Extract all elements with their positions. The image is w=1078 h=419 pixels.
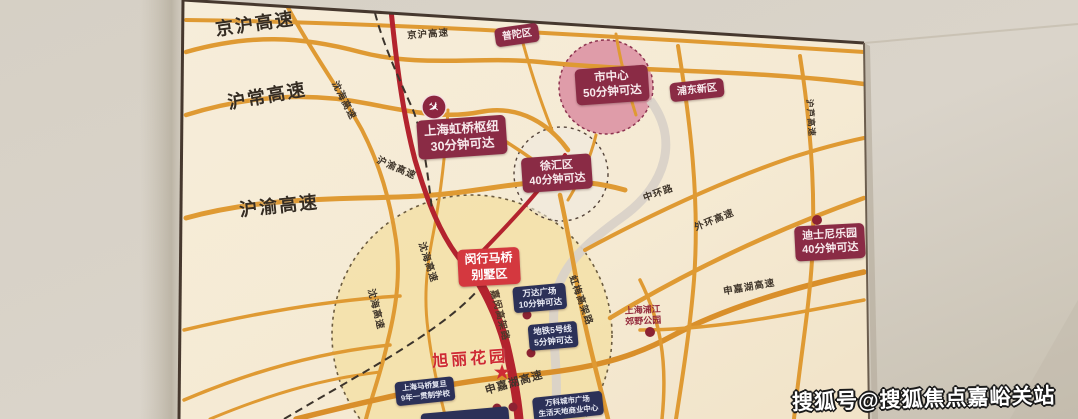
badge-xuhui: 徐汇区 40分钟可达 [521, 153, 593, 192]
road-label-jiamin-viaduct: 嘉闵高架路 [488, 288, 514, 342]
road-label-shenhai-bottom: 沈海高速 [365, 287, 389, 331]
badge-cutoff [420, 406, 509, 419]
road-label-huchang: 沪常高速 [225, 75, 308, 114]
poi-pujiang-park: 上海浦江 郊野公园 [624, 304, 661, 328]
road-label-waihuan: 外环高速 [692, 205, 736, 234]
road-label-hulu: 沪芦高速 [804, 99, 819, 138]
road-label-shenhai-top: 沈海高速 [329, 78, 361, 122]
badge-metro5: 地铁5号线 5分钟可达 [528, 321, 579, 351]
road-label-jinghu-small: 京沪高速 [407, 25, 450, 42]
badge-city-center: 市中心 50分钟可达 [574, 65, 649, 106]
badge-school: 上海马桥复旦 9年一贯制学校 [394, 376, 455, 406]
road-label-jinghu-big: 京沪高速 [214, 5, 297, 42]
map-labels: 京沪高速 沪常高速 沪渝高速 京沪高速 沈海高速 沪渝高速 沈海高速 沈海高速 … [0, 0, 1078, 419]
badge-putuo: 普陀区 [494, 23, 540, 48]
badge-vanke: 万科城市广场 生活天地商业中心 [532, 391, 604, 419]
road-label-shenhai-mid: 沈海高速 [416, 240, 442, 284]
road-label-zhonghuan: 中环路 [641, 180, 675, 204]
poi-xuli-garden: 旭丽花园 [431, 342, 509, 371]
road-label-huyu-big: 沪渝高速 [238, 188, 320, 222]
photo-of-location-map: ✈ ★ 京沪高速 沪常高速 沪渝高速 京沪高速 沈海高速 沪渝高速 沈海高速 沈… [0, 0, 1078, 419]
badge-minhang-maqiao: 闵行马桥 别墅区 [457, 247, 521, 287]
badge-hongqiao: 上海虹桥枢纽 30分钟可达 [416, 115, 507, 160]
badge-wanda: 万达广场 10分钟可达 [512, 283, 568, 314]
road-label-shenjiahu-bottom: 申嘉湖高速 [483, 366, 545, 398]
road-label-hongmei-viaduct: 虹梅高架路 [566, 273, 597, 327]
road-label-shenjiahu-right: 申嘉湖高速 [722, 275, 776, 298]
road-label-huyu-small: 沪渝高速 [375, 152, 419, 182]
badge-disney: 迪士尼乐园 40分钟可达 [794, 223, 866, 261]
badge-pudong: 浦东新区 [669, 78, 725, 103]
